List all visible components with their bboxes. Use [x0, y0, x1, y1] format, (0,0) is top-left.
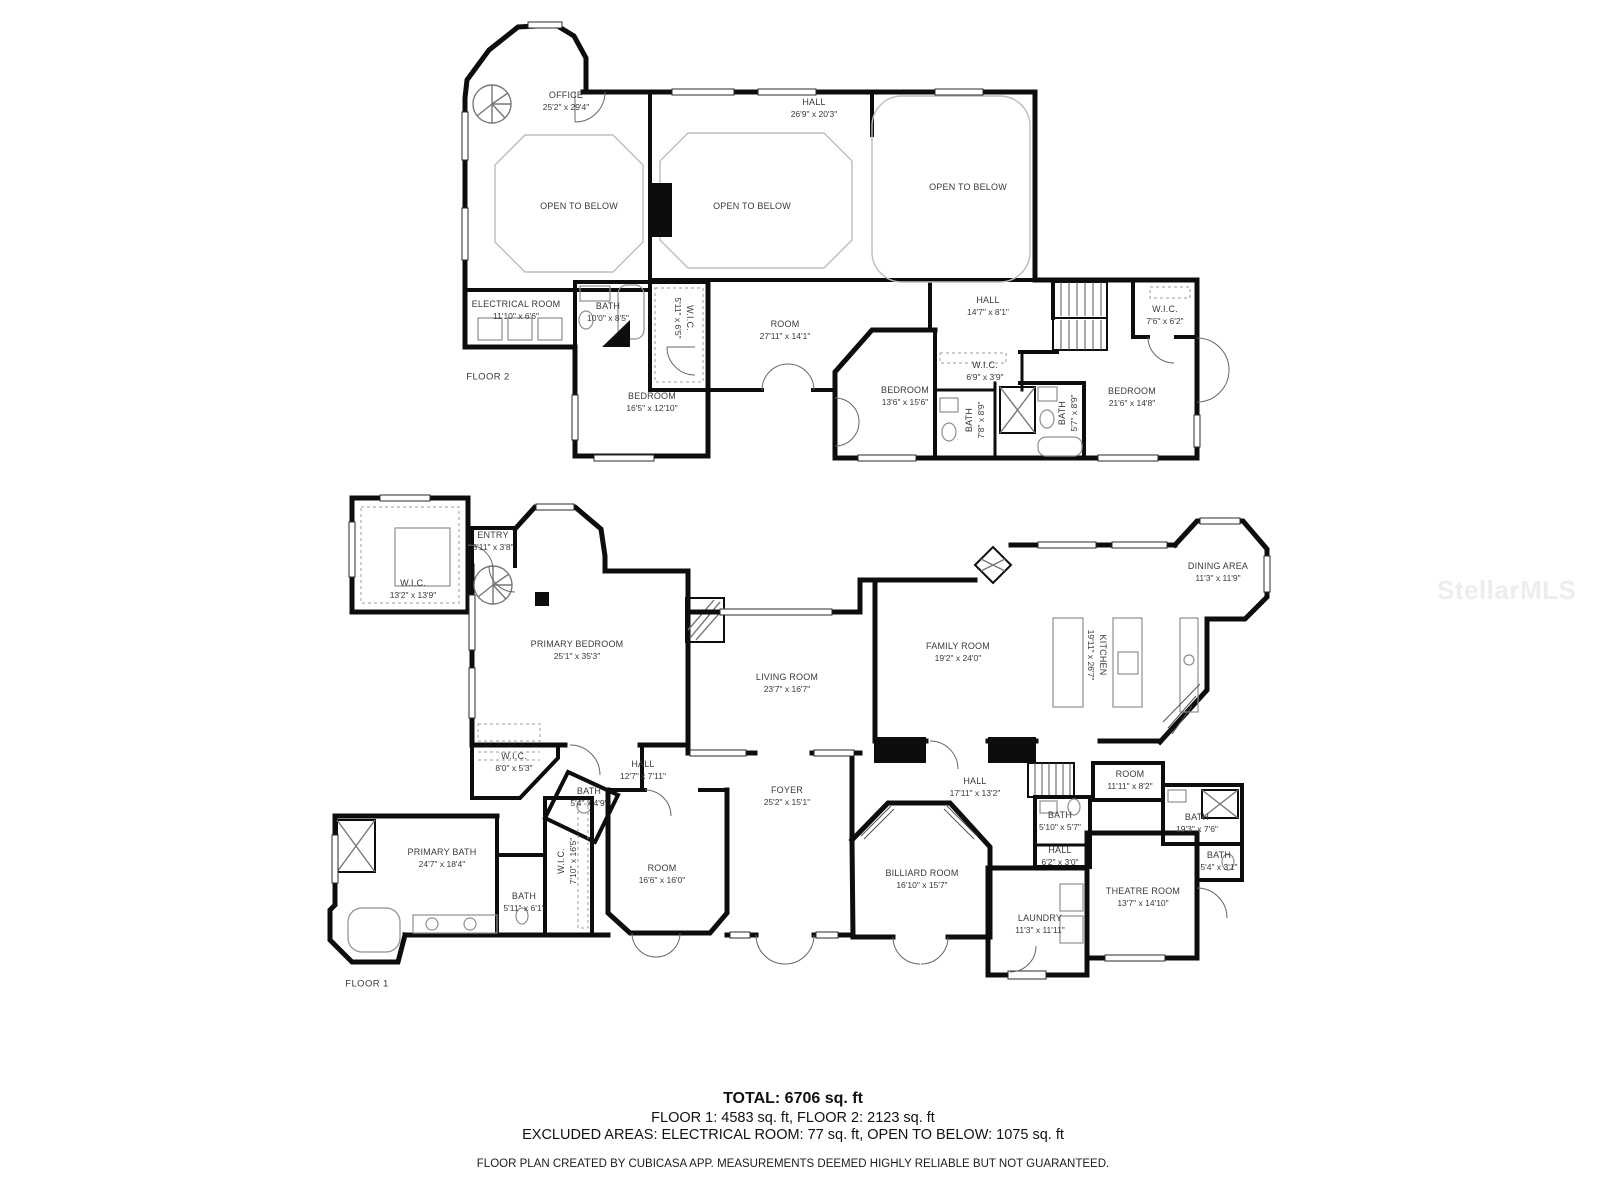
- room-label-bedroom-2: BEDROOM13'6" x 15'6": [881, 385, 929, 407]
- room-label-entry: ENTRY3'11" x 3'8": [472, 530, 513, 552]
- room-label-wic-f2-2: W.I.C.7'6" x 6'2": [1146, 304, 1183, 326]
- room-label-hall-f1-2: HALL17'11" x 13'2": [950, 776, 1001, 798]
- room-label-room-f1-2: ROOM11'11" x 8'2": [1107, 769, 1152, 791]
- room-label-kitchen: KITCHEN19'11" x 26'7": [1086, 630, 1108, 681]
- stellar-mls-watermark: StellarMLS: [1437, 575, 1576, 606]
- room-label-wic-f2-3: W.I.C.6'9" x 3'9": [966, 360, 1003, 382]
- room-label-hall-f1-3: HALL6'2" x 3'0": [1041, 845, 1078, 867]
- room-label-electrical: ELECTRICAL ROOM11'10" x 6'6": [472, 299, 561, 321]
- room-label-billiard-room: BILLIARD ROOM16'10" x 15'7": [885, 868, 958, 890]
- room-label-open-to-below-mid: OPEN TO BELOW: [713, 201, 791, 213]
- floor-areas-text: FLOOR 1: 4583 sq. ft, FLOOR 2: 2123 sq. …: [651, 1110, 935, 1126]
- room-label-bath-f2-1: BATH10'0" x 8'5": [587, 301, 629, 323]
- room-label-laundry: LAUNDRY11'3" x 11'11": [1015, 913, 1064, 935]
- room-label-hall-f2: HALL26'9" x 20'3": [791, 97, 838, 119]
- room-label-hall-f1-1: HALL12'7" x 7'11": [620, 759, 666, 781]
- room-label-dining-area: DINING AREA11'3" x 11'9": [1188, 561, 1248, 583]
- room-label-room-f1-1: ROOM16'6" x 16'0": [639, 863, 686, 885]
- room-label-bath-f1-2: BATH5'11" x 6'1": [503, 891, 544, 913]
- room-label-wic-f1-3: W.I.C.7'10" x 16'5": [556, 838, 578, 885]
- room-label-wic-f2-1: W.I.C.5'11" x 6'5": [673, 297, 695, 338]
- room-label-open-to-below-left: OPEN TO BELOW: [540, 201, 618, 213]
- disclaimer-text: FLOOR PLAN CREATED BY CUBICASA APP. MEAS…: [477, 1158, 1109, 1170]
- floor2-tag: FLOOR 2: [466, 372, 509, 383]
- room-label-bath-f1-5: BATH5'4" x 3'1": [1200, 850, 1237, 872]
- floor1-tag: FLOOR 1: [345, 979, 388, 990]
- room-label-bath-f1-3: BATH5'10" x 5'7": [1039, 810, 1081, 832]
- room-label-bedroom-3: BEDROOM21'6" x 14'8": [1108, 386, 1156, 408]
- room-label-wic-f1-2: W.I.C.8'0" x 5'3": [495, 751, 532, 773]
- excluded-areas-text: EXCLUDED AREAS: ELECTRICAL ROOM: 77 sq. …: [522, 1127, 1064, 1143]
- room-label-primary-bedroom: PRIMARY BEDROOM25'1" x 35'3": [531, 639, 624, 661]
- room-label-bedroom-1: BEDROOM16'5" x 12'10": [626, 391, 677, 413]
- room-label-foyer: FOYER25'2" x 15'1": [764, 785, 811, 807]
- room-label-bath-f1-4: BATH19'3" x 7'6": [1176, 812, 1218, 834]
- total-area-text: TOTAL: 6706 sq. ft: [723, 1090, 863, 1108]
- room-label-open-to-below-right: OPEN TO BELOW: [929, 182, 1007, 194]
- room-label-living-room: LIVING ROOM23'7" x 16'7": [756, 672, 818, 694]
- room-label-hall-f2-2: HALL14'7" x 8'1": [967, 295, 1009, 317]
- room-label-wic-f1-1: W.I.C.13'2" x 13'9": [390, 578, 437, 600]
- room-label-primary-bath: PRIMARY BATH24'7" x 18'4": [408, 847, 477, 869]
- room-label-room-f2: ROOM27'11" x 14'1": [760, 319, 811, 341]
- room-label-office: OFFICE25'2" x 29'4": [543, 90, 590, 112]
- room-label-theatre-room: THEATRE ROOM13'7" x 14'10": [1106, 886, 1180, 908]
- room-label-bath-f1-1: BATH5'4" x 4'9": [570, 786, 607, 808]
- room-label-family-room: FAMILY ROOM19'2" x 24'0": [926, 641, 990, 663]
- room-label-bath-f2-3: BATH5'7" x 8'9": [1057, 394, 1079, 431]
- floorplan-page: { "watermark": "StellarMLS", "floor2": {…: [0, 0, 1600, 1200]
- floorplan-drawing: [0, 0, 1600, 1200]
- room-label-bath-f2-2: BATH7'8" x 8'9": [964, 401, 986, 438]
